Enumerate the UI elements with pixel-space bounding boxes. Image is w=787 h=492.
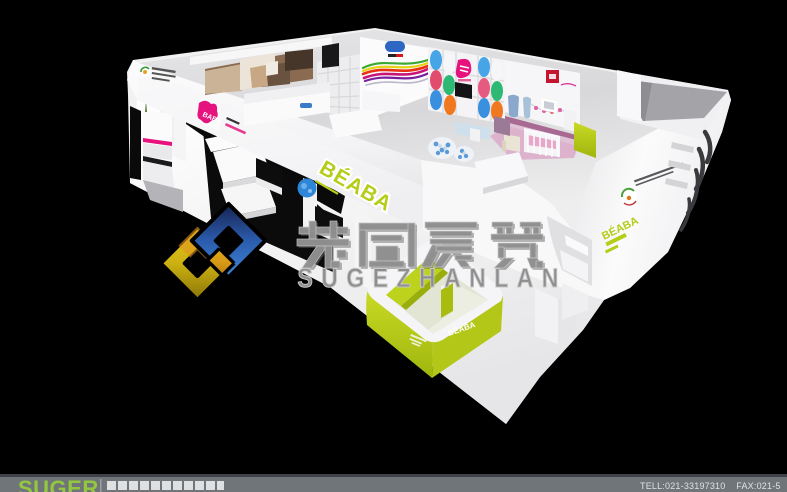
svg-text:SUGER: SUGER (18, 476, 99, 492)
svg-text:SUGEZHANLAN: SUGEZHANLAN (298, 263, 567, 293)
svg-text:TELL:021-33197310 FAX:021-5: TELL:021-33197310 FAX:021-5 (640, 481, 781, 491)
